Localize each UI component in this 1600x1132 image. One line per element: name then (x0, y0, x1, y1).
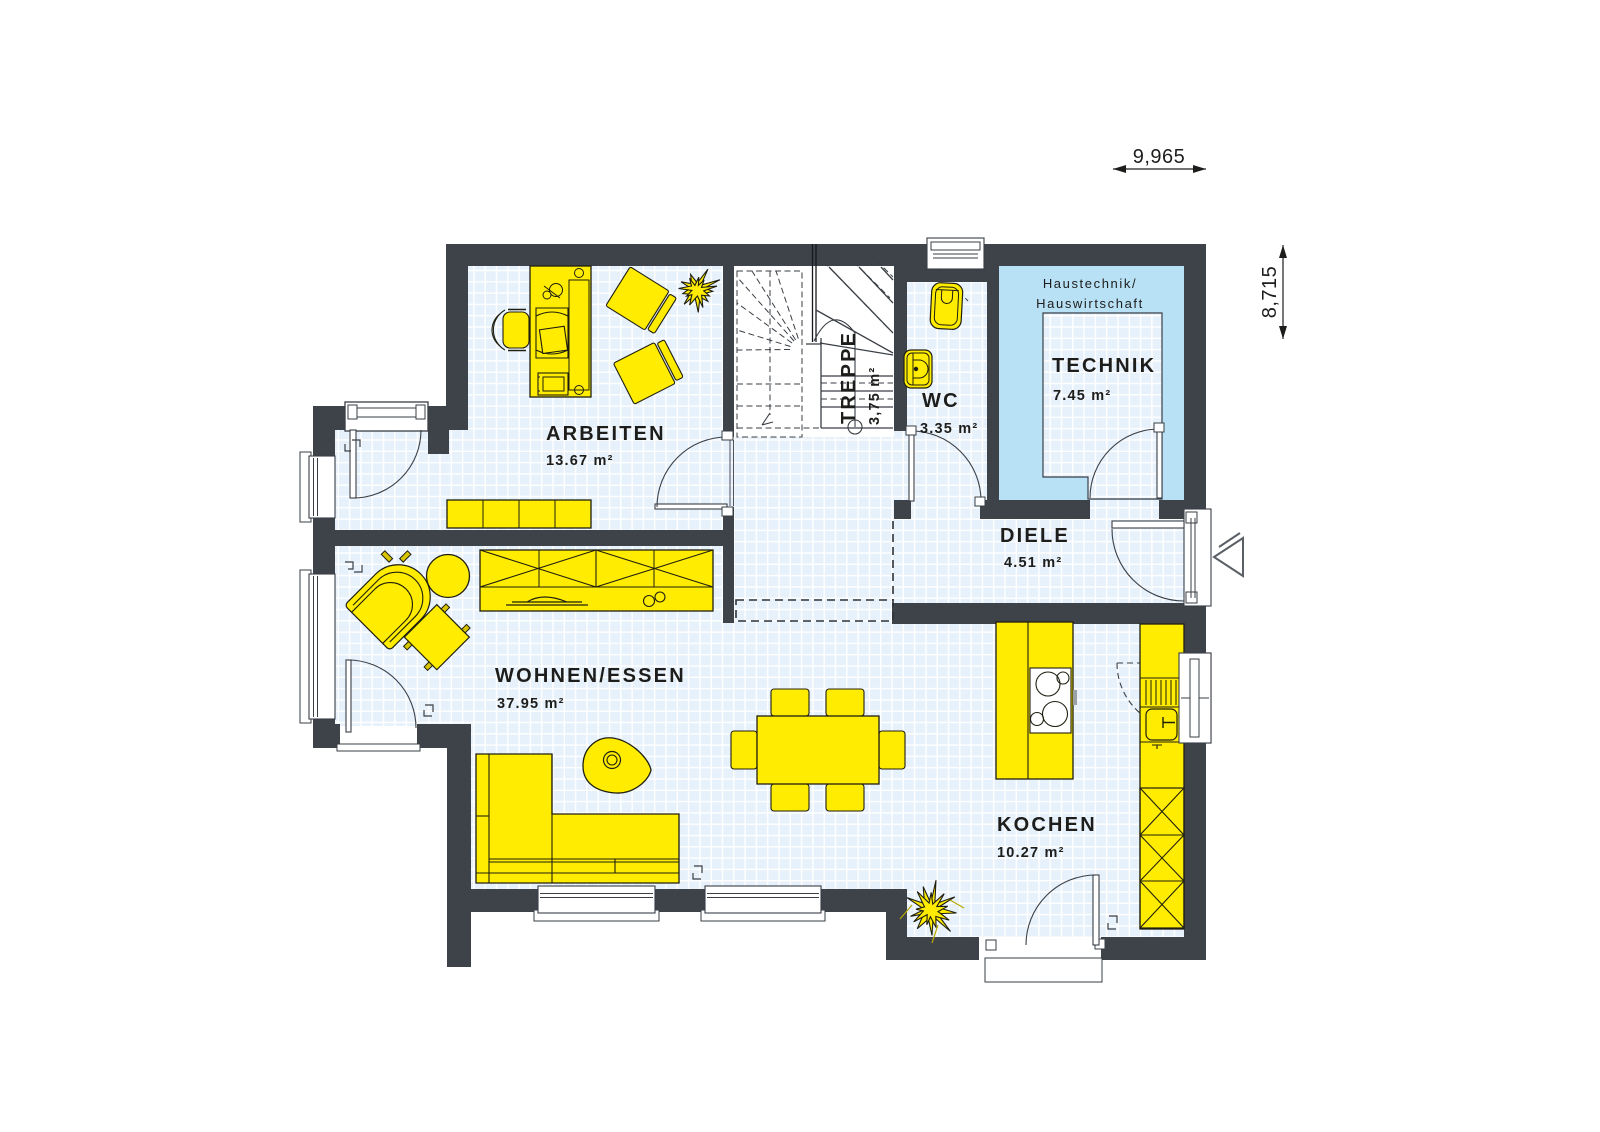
svg-text:4.51 m²: 4.51 m² (1004, 555, 1062, 571)
svg-text:WC: WC (922, 390, 960, 412)
svg-text:KOCHEN: KOCHEN (997, 814, 1097, 836)
svg-text:TREPPE: TREPPE (838, 331, 860, 424)
svg-text:Haustechnik/: Haustechnik/ (1043, 276, 1137, 291)
svg-text:TECHNIK: TECHNIK (1052, 355, 1156, 377)
svg-text:DIELE: DIELE (1000, 525, 1070, 547)
svg-text:WOHNEN/ESSEN: WOHNEN/ESSEN (495, 665, 686, 687)
svg-text:13.67 m²: 13.67 m² (546, 453, 614, 469)
svg-text:9,965: 9,965 (1133, 146, 1186, 168)
svg-text:Hauswirtschaft: Hauswirtschaft (1036, 296, 1144, 311)
svg-text:8,715: 8,715 (1259, 266, 1281, 319)
svg-text:10.27 m²: 10.27 m² (997, 845, 1065, 861)
svg-text:3.35 m²: 3.35 m² (920, 421, 978, 437)
svg-text:7.45 m²: 7.45 m² (1053, 388, 1111, 404)
svg-text:37.95 m²: 37.95 m² (497, 696, 565, 712)
svg-text:ARBEITEN: ARBEITEN (546, 423, 666, 445)
svg-text:3,75 m²: 3,75 m² (867, 367, 883, 425)
